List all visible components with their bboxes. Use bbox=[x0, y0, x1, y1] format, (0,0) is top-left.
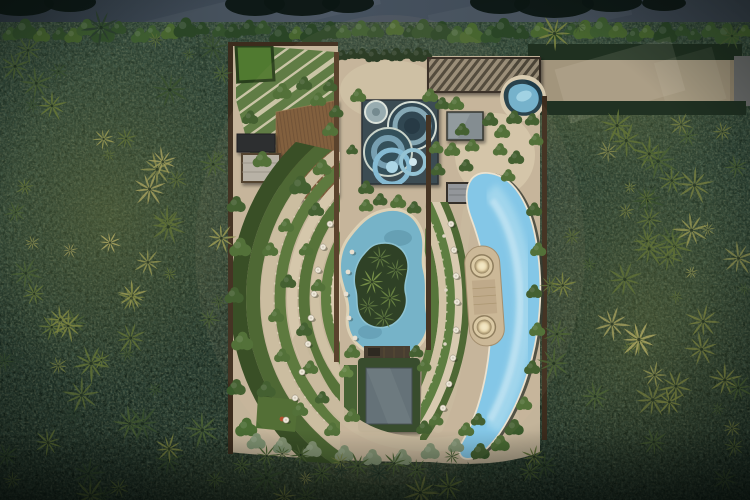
aerial-resort-render bbox=[0, 0, 750, 500]
vignette bbox=[0, 0, 750, 500]
